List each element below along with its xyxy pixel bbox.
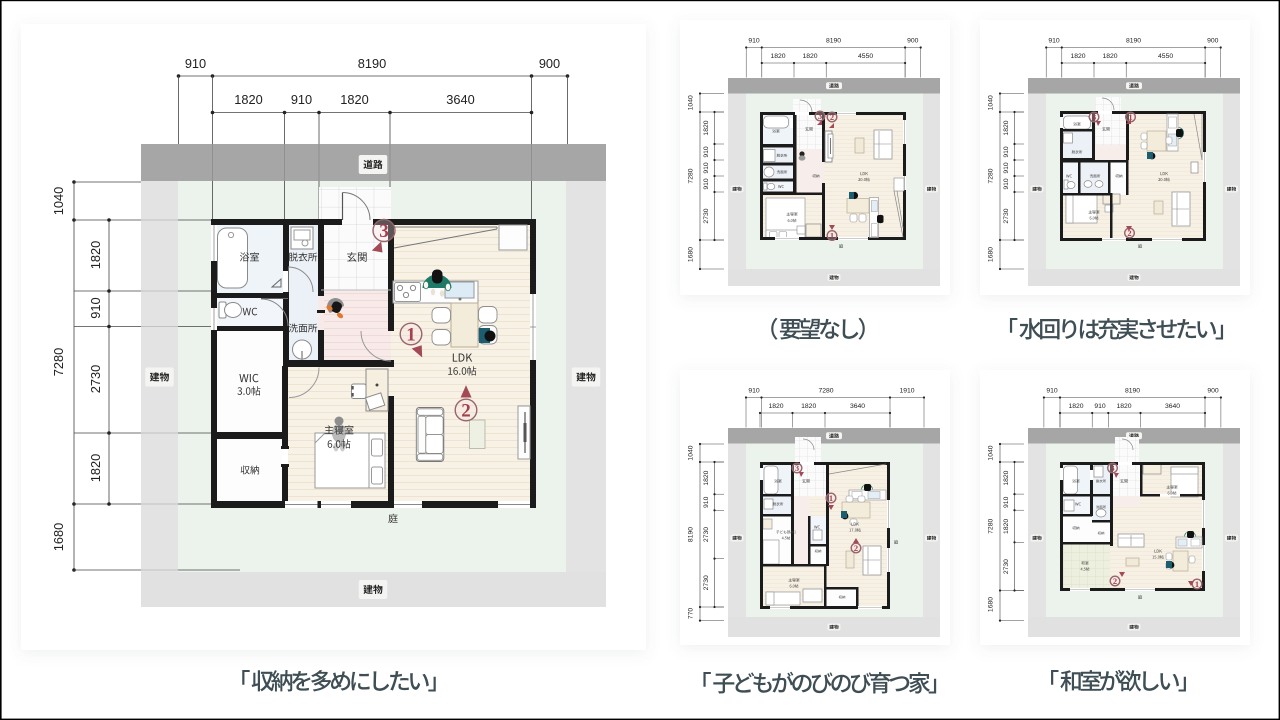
svg-text:1: 1 [406,324,416,345]
svg-text:1: 1 [1195,579,1199,589]
svg-text:1040: 1040 [688,445,695,460]
svg-text:910: 910 [88,297,103,318]
svg-text:910: 910 [1003,146,1010,158]
svg-text:1680: 1680 [688,247,695,262]
svg-text:2730: 2730 [703,208,710,223]
svg-text:4550: 4550 [858,53,873,60]
svg-text:2: 2 [854,543,858,553]
svg-text:8190: 8190 [688,527,695,542]
svg-text:1910: 1910 [899,388,914,395]
svg-text:1680: 1680 [988,247,995,262]
svg-text:910: 910 [748,388,760,395]
svg-text:1820: 1820 [1068,403,1083,410]
svg-text:2: 2 [830,112,834,122]
svg-text:2730: 2730 [1003,208,1010,223]
svg-text:1820: 1820 [801,403,816,410]
svg-text:910: 910 [1094,403,1106,410]
svg-text:8190: 8190 [1126,38,1141,45]
svg-text:900: 900 [539,56,560,71]
svg-text:1820: 1820 [88,454,103,482]
svg-text:1820: 1820 [234,92,262,107]
svg-text:7280: 7280 [51,348,66,376]
svg-text:1820: 1820 [340,92,368,107]
svg-text:7280: 7280 [988,168,995,183]
svg-text:2730: 2730 [703,527,710,542]
svg-text:2730: 2730 [88,365,103,393]
svg-text:1: 1 [830,230,834,240]
svg-text:1820: 1820 [1102,53,1117,60]
svg-text:3: 3 [795,463,799,473]
svg-text:1820: 1820 [1003,470,1010,485]
svg-text:1820: 1820 [703,120,710,135]
svg-text:1040: 1040 [988,445,995,460]
svg-text:1040: 1040 [51,187,66,215]
svg-text:910: 910 [703,162,710,174]
svg-text:3640: 3640 [446,92,474,107]
svg-text:900: 900 [1207,38,1219,45]
svg-text:1040: 1040 [688,95,695,110]
svg-text:910: 910 [1046,388,1058,395]
svg-text:1040: 1040 [988,95,995,110]
svg-text:8190: 8190 [358,56,386,71]
svg-text:910: 910 [1003,178,1010,190]
svg-text:1820: 1820 [88,241,103,269]
svg-text:7280: 7280 [688,168,695,183]
svg-text:1820: 1820 [1003,120,1010,135]
svg-text:3: 3 [818,111,822,121]
svg-text:7280: 7280 [988,519,995,534]
svg-text:900: 900 [1207,388,1219,395]
svg-text:1820: 1820 [1070,53,1085,60]
svg-text:910: 910 [703,496,710,508]
svg-text:4550: 4550 [1158,53,1173,60]
svg-text:3640: 3640 [850,403,865,410]
svg-text:770: 770 [688,608,695,620]
svg-text:3: 3 [1110,463,1114,473]
svg-text:910: 910 [185,56,206,71]
svg-text:910: 910 [291,92,312,107]
svg-text:3: 3 [1092,112,1096,122]
svg-text:3: 3 [379,221,389,242]
svg-text:1820: 1820 [768,403,783,410]
svg-text:910: 910 [1003,496,1010,508]
svg-text:2730: 2730 [1003,559,1010,574]
svg-text:1680: 1680 [988,597,995,612]
svg-text:3640: 3640 [1165,403,1180,410]
svg-text:910: 910 [703,146,710,158]
svg-text:900: 900 [907,38,919,45]
svg-text:2: 2 [461,400,471,421]
svg-text:2: 2 [1113,576,1117,586]
svg-text:1680: 1680 [51,523,66,551]
svg-text:910: 910 [703,178,710,190]
svg-text:1820: 1820 [1116,403,1131,410]
svg-text:1820: 1820 [1003,519,1010,534]
svg-text:1820: 1820 [703,470,710,485]
svg-text:7280: 7280 [818,388,833,395]
svg-text:2730: 2730 [703,575,710,590]
svg-text:1820: 1820 [802,53,817,60]
svg-text:1: 1 [829,493,833,503]
svg-text:8190: 8190 [826,38,841,45]
svg-text:1820: 1820 [770,53,785,60]
svg-text:8190: 8190 [1125,388,1140,395]
svg-text:910: 910 [748,38,760,45]
svg-text:910: 910 [1003,162,1010,174]
svg-text:910: 910 [1048,38,1060,45]
